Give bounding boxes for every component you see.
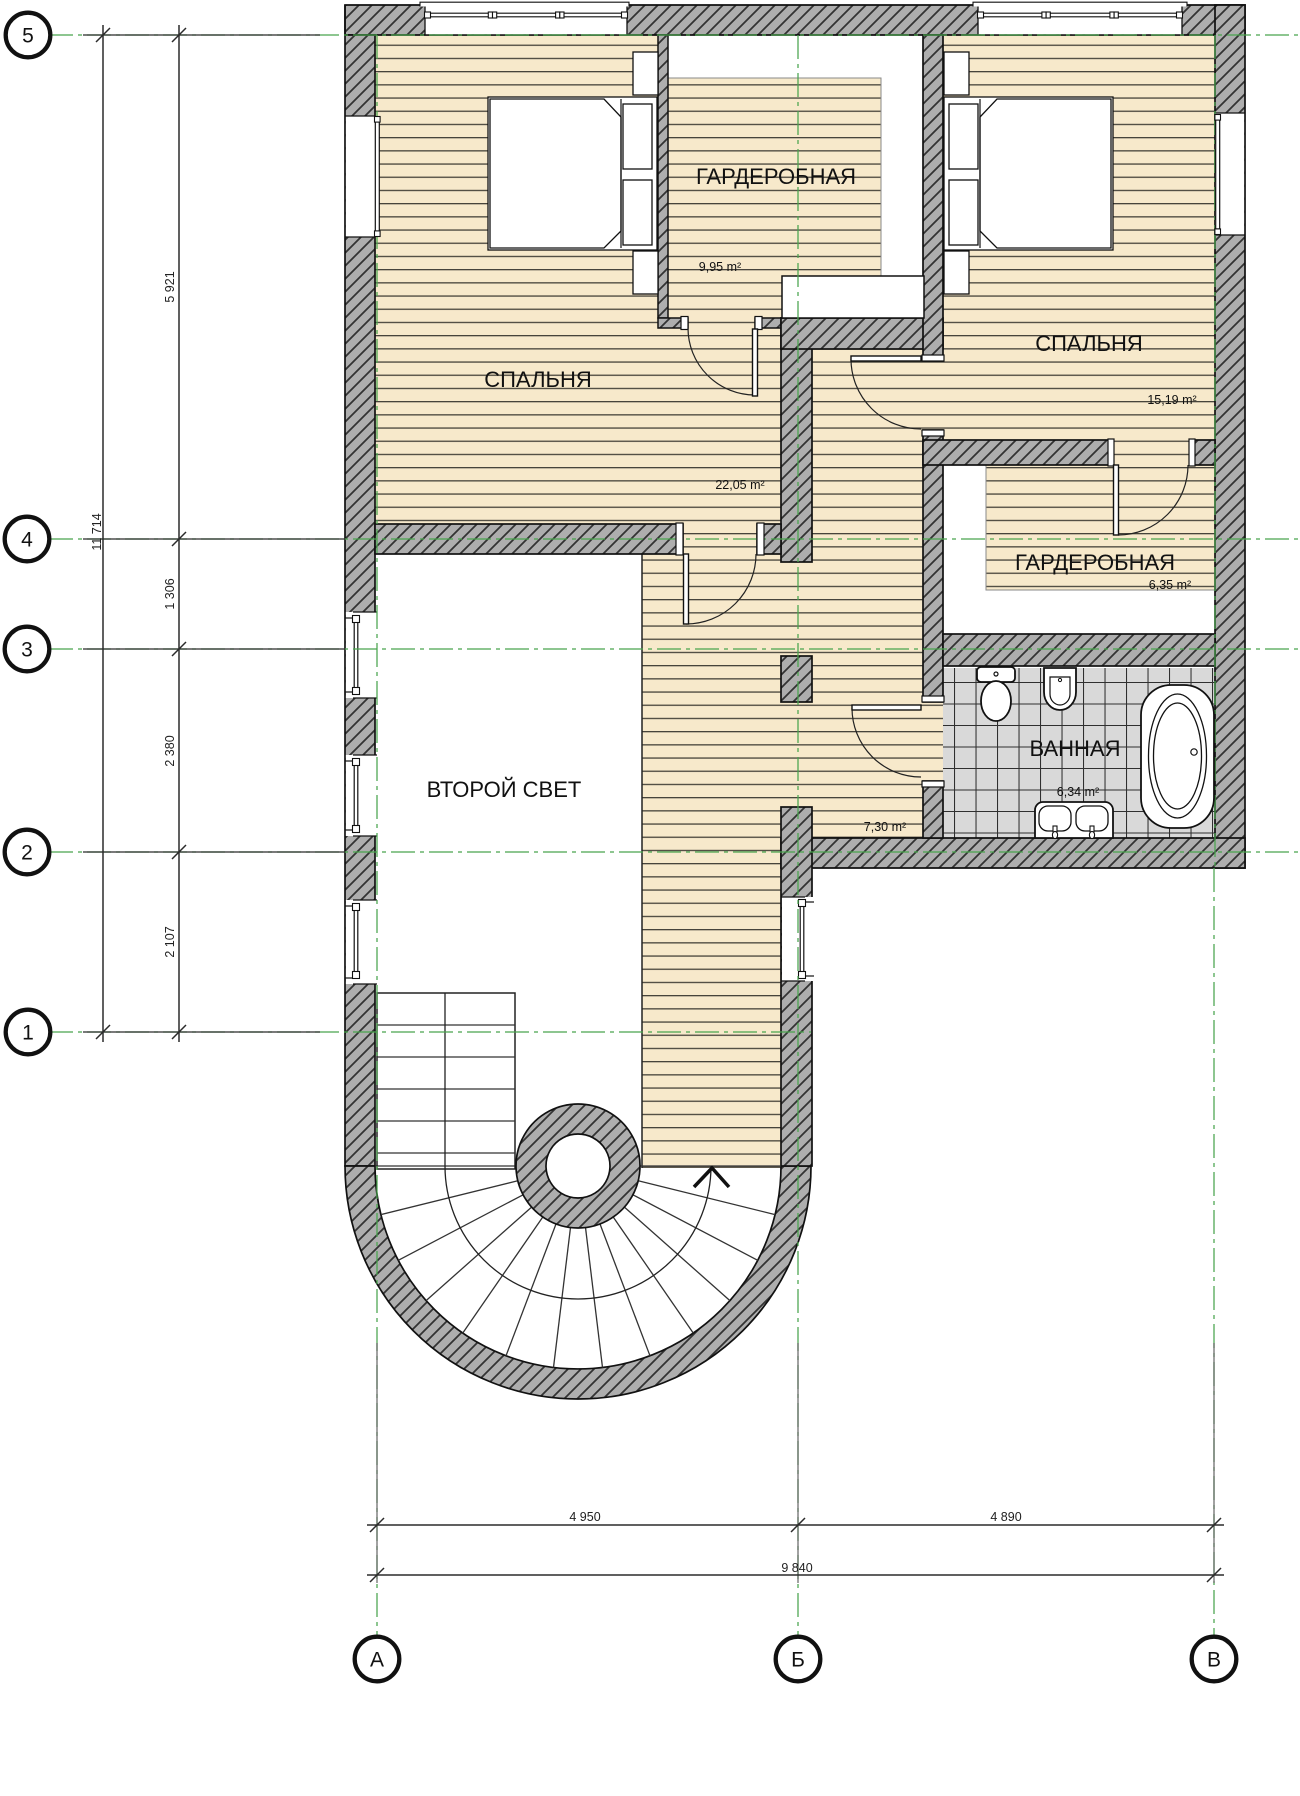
svg-text:9 840: 9 840 [781, 1561, 812, 1575]
svg-text:В: В [1207, 1649, 1221, 1672]
svg-text:ГАРДЕРОБНАЯ: ГАРДЕРОБНАЯ [1015, 550, 1175, 575]
svg-text:2 380: 2 380 [163, 735, 177, 766]
svg-text:11 714: 11 714 [90, 513, 104, 550]
svg-text:6,35 m²: 6,35 m² [1149, 578, 1191, 592]
svg-text:А: А [370, 1649, 384, 1672]
svg-text:ВТОРОЙ СВЕТ: ВТОРОЙ СВЕТ [427, 777, 582, 802]
svg-text:СПАЛЬНЯ: СПАЛЬНЯ [484, 367, 592, 392]
svg-text:ВАННАЯ: ВАННАЯ [1030, 736, 1121, 761]
svg-text:4 890: 4 890 [990, 1510, 1021, 1524]
svg-text:5 921: 5 921 [163, 271, 177, 302]
svg-text:6,34 m²: 6,34 m² [1057, 785, 1099, 799]
svg-text:7,30 m²: 7,30 m² [864, 820, 906, 834]
svg-text:Б: Б [791, 1649, 805, 1672]
svg-text:1: 1 [22, 1022, 34, 1045]
svg-text:2 107: 2 107 [163, 926, 177, 957]
svg-text:4: 4 [21, 529, 33, 552]
svg-text:1 306: 1 306 [163, 578, 177, 609]
svg-text:ГАРДЕРОБНАЯ: ГАРДЕРОБНАЯ [696, 164, 856, 189]
svg-text:3: 3 [21, 639, 33, 662]
svg-text:5: 5 [22, 25, 34, 48]
svg-text:15,19 m²: 15,19 m² [1147, 393, 1196, 407]
svg-text:9,95 m²: 9,95 m² [699, 260, 741, 274]
svg-text:2: 2 [21, 842, 33, 865]
svg-text:4 950: 4 950 [569, 1510, 600, 1524]
svg-text:СПАЛЬНЯ: СПАЛЬНЯ [1035, 331, 1143, 356]
svg-text:22,05 m²: 22,05 m² [715, 478, 764, 492]
